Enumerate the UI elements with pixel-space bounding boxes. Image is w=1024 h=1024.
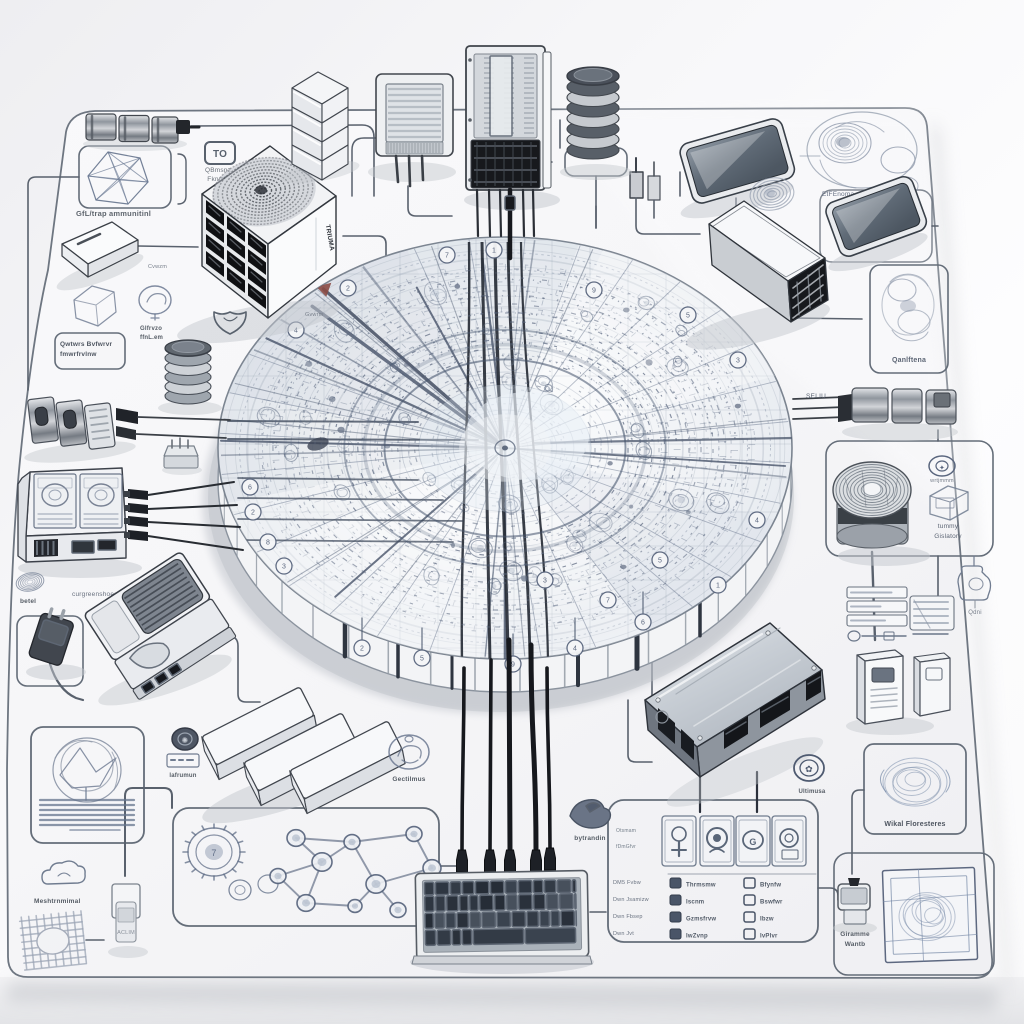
svg-text:Wikal Floresteres: Wikal Floresteres (884, 821, 945, 828)
svg-text:ACLIM: ACLIM (117, 930, 135, 936)
svg-text:5: 5 (420, 656, 424, 663)
svg-text:4: 4 (755, 518, 759, 525)
svg-text:Gectilmus: Gectilmus (392, 776, 425, 783)
svg-text:Cvwzm: Cvwzm (148, 264, 167, 270)
svg-text:2: 2 (360, 646, 364, 653)
svg-text:Meshtrnmimal: Meshtrnmimal (34, 898, 80, 905)
svg-text:Wantb: Wantb (845, 941, 866, 948)
svg-text:Dwn Jvt: Dwn Jvt (613, 931, 634, 937)
svg-text:Dwn Fbsep: Dwn Fbsep (613, 914, 643, 920)
svg-text:3: 3 (736, 358, 740, 365)
svg-text:8: 8 (266, 540, 270, 547)
svg-text:5: 5 (686, 313, 690, 320)
svg-text:5: 5 (658, 558, 662, 565)
svg-text:7: 7 (445, 253, 449, 260)
svg-text:SEI.IU: SEI.IU (806, 393, 826, 400)
svg-text:IwZvnp: IwZvnp (686, 934, 708, 940)
svg-text:7: 7 (211, 848, 216, 858)
svg-text:ffnL.em: ffnL.em (140, 335, 163, 341)
svg-text:bytrandin: bytrandin (574, 835, 605, 842)
svg-text:Dwn Jsamizw: Dwn Jsamizw (613, 897, 649, 903)
svg-text:2: 2 (251, 510, 255, 517)
svg-text:9: 9 (592, 288, 596, 295)
svg-text:lafrumun: lafrumun (169, 773, 196, 779)
svg-text:3: 3 (282, 564, 286, 571)
svg-text:Glfrvzo: Glfrvzo (140, 326, 162, 332)
svg-text:fmwrfrvlnw: fmwrfrvlnw (60, 351, 97, 358)
svg-text:Bfynfw: Bfynfw (760, 883, 781, 889)
svg-text:7: 7 (606, 598, 610, 605)
svg-text:fDmGfvr: fDmGfvr (616, 844, 636, 850)
svg-text:GfL/trap ammunitinl: GfL/trap ammunitinl (76, 209, 151, 218)
svg-text:2: 2 (346, 286, 350, 293)
svg-text:G: G (749, 837, 756, 847)
svg-text:Ultimusa: Ultimusa (799, 789, 826, 795)
svg-text:Ibzw: Ibzw (760, 917, 774, 923)
svg-text:Iscnm: Iscnm (686, 900, 704, 906)
svg-text:4: 4 (573, 646, 577, 653)
svg-text:1: 1 (716, 583, 720, 590)
svg-text:Bswfwr: Bswfwr (760, 900, 783, 906)
svg-text:TO: TO (213, 149, 227, 160)
svg-text:Qwtwrs Bvfwrvr: Qwtwrs Bvfwrvr (60, 341, 113, 348)
svg-text:Qdni: Qdni (968, 610, 981, 616)
svg-text:✺: ✺ (182, 736, 189, 745)
svg-text:IvPlvr: IvPlvr (760, 934, 778, 940)
svg-text:✦: ✦ (939, 464, 945, 472)
svg-text:6: 6 (248, 485, 252, 492)
svg-text:Thrmsmw: Thrmsmw (686, 883, 716, 889)
svg-text:betel: betel (20, 598, 36, 605)
svg-text:Gislatory: Gislatory (934, 533, 962, 540)
svg-text:Giramme: Giramme (840, 931, 870, 938)
svg-text:3: 3 (543, 578, 547, 585)
svg-text:tummy: tummy (938, 523, 959, 530)
svg-text:Qanlftena: Qanlftena (892, 357, 926, 364)
svg-text:Gzmsfrvw: Gzmsfrvw (686, 917, 716, 923)
svg-text:Otsmam: Otsmam (616, 828, 636, 834)
svg-text:✿: ✿ (805, 764, 813, 774)
svg-text:wrtjmmm: wrtjmmm (929, 478, 954, 484)
svg-text:6: 6 (641, 620, 645, 627)
svg-text:Gvwrm: Gvwrm (305, 312, 324, 318)
svg-text:DM5 Fvbw: DM5 Fvbw (613, 880, 641, 886)
svg-text:1: 1 (492, 248, 496, 255)
